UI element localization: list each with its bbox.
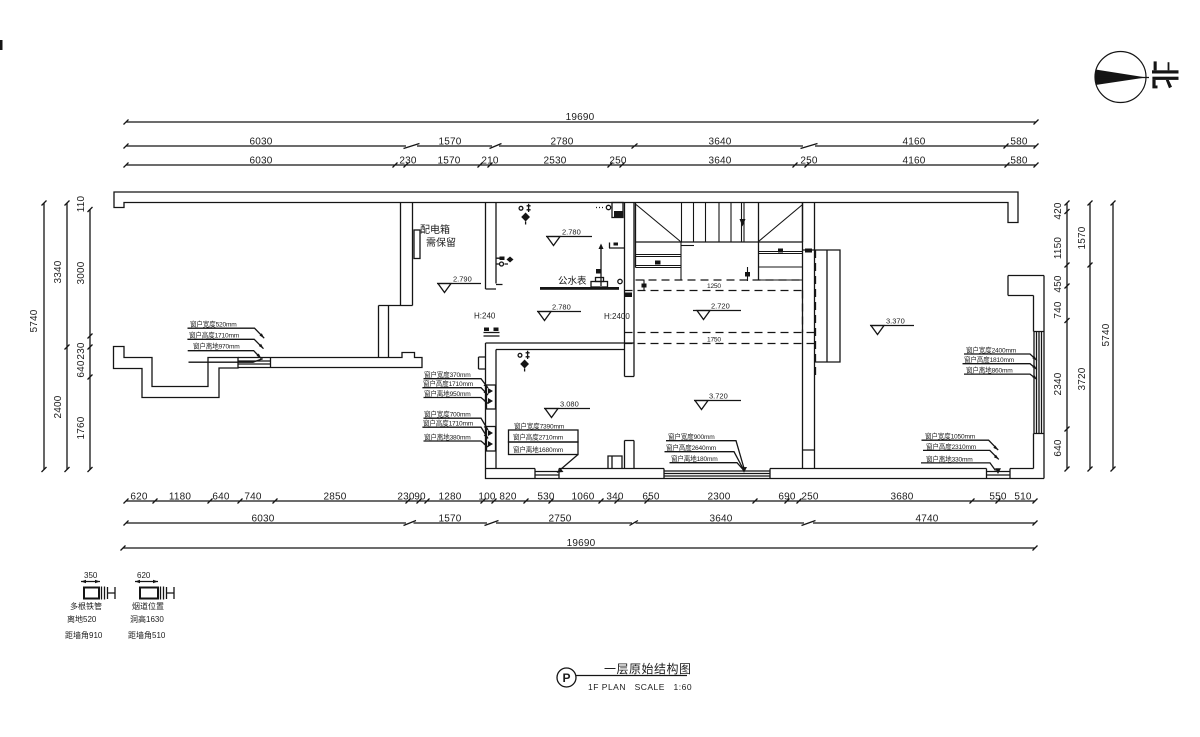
svg-text:1570: 1570 bbox=[1077, 226, 1088, 249]
svg-text:350: 350 bbox=[84, 571, 98, 580]
svg-text:3640: 3640 bbox=[709, 514, 732, 525]
svg-text:2530: 2530 bbox=[543, 156, 566, 167]
svg-text:1060: 1060 bbox=[571, 492, 594, 503]
svg-text:距墙角510: 距墙角510 bbox=[128, 630, 166, 640]
svg-text:窗户宽度7390mm: 窗户宽度7390mm bbox=[514, 421, 565, 430]
svg-text:1750: 1750 bbox=[707, 337, 721, 344]
svg-text:窗户宽度520mm: 窗户宽度520mm bbox=[190, 320, 237, 329]
svg-text:3640: 3640 bbox=[708, 137, 731, 148]
svg-text:窗户宽度1050mm: 窗户宽度1050mm bbox=[925, 432, 976, 441]
svg-text:2.720: 2.720 bbox=[711, 302, 730, 311]
svg-text:640: 640 bbox=[76, 360, 87, 378]
svg-text:窗户高度1710mm: 窗户高度1710mm bbox=[423, 379, 474, 388]
svg-text:19690: 19690 bbox=[566, 112, 595, 123]
svg-text:340: 340 bbox=[606, 492, 624, 503]
svg-text:3.370: 3.370 bbox=[886, 317, 905, 326]
svg-text:窗户宽度900mm: 窗户宽度900mm bbox=[668, 432, 715, 441]
svg-text:6030: 6030 bbox=[251, 514, 274, 525]
svg-text:3640: 3640 bbox=[708, 156, 731, 167]
svg-text:窗户离地180mm: 窗户离地180mm bbox=[671, 454, 718, 463]
svg-text:窗户离地380mm: 窗户离地380mm bbox=[424, 432, 471, 441]
svg-text:烟道位置: 烟道位置 bbox=[132, 601, 164, 611]
svg-text:2300: 2300 bbox=[707, 492, 730, 503]
svg-text:3720: 3720 bbox=[1077, 367, 1088, 390]
svg-text:1570: 1570 bbox=[438, 137, 461, 148]
svg-text:3000: 3000 bbox=[76, 261, 87, 284]
svg-text:250: 250 bbox=[801, 492, 819, 503]
svg-text:洞高1630: 洞高1630 bbox=[130, 614, 164, 624]
svg-text:窗户离地860mm: 窗户离地860mm bbox=[966, 365, 1013, 374]
svg-text:640: 640 bbox=[212, 492, 230, 503]
svg-text:窗户宽度370mm: 窗户宽度370mm bbox=[424, 370, 471, 379]
svg-text:420: 420 bbox=[1053, 202, 1064, 220]
svg-text:4160: 4160 bbox=[902, 156, 925, 167]
svg-text:一层原始结构图: 一层原始结构图 bbox=[604, 661, 692, 676]
svg-text:2850: 2850 bbox=[323, 492, 346, 503]
svg-text:1280: 1280 bbox=[438, 492, 461, 503]
svg-text:740: 740 bbox=[244, 492, 262, 503]
svg-text:1760: 1760 bbox=[76, 416, 87, 439]
svg-text:250: 250 bbox=[609, 156, 627, 167]
svg-text:H:240: H:240 bbox=[474, 312, 496, 321]
svg-text:离地520: 离地520 bbox=[67, 614, 97, 624]
svg-text:640: 640 bbox=[1053, 439, 1064, 457]
svg-text:窗户高度2710mm: 窗户高度2710mm bbox=[513, 432, 564, 441]
svg-text:1250: 1250 bbox=[707, 283, 721, 290]
svg-text:19690: 19690 bbox=[567, 538, 596, 549]
svg-text:250: 250 bbox=[800, 156, 818, 167]
svg-text:740: 740 bbox=[1053, 301, 1064, 319]
svg-text:3340: 3340 bbox=[53, 260, 64, 283]
svg-text:2.780: 2.780 bbox=[562, 228, 581, 237]
svg-text:窗户离地330mm: 窗户离地330mm bbox=[926, 454, 973, 463]
svg-text:窗户离地950mm: 窗户离地950mm bbox=[424, 389, 471, 398]
svg-text:窗户宽度2400mm: 窗户宽度2400mm bbox=[966, 345, 1017, 354]
svg-text:窗户高度1710mm: 窗户高度1710mm bbox=[423, 419, 474, 428]
svg-text:窗户宽度700mm: 窗户宽度700mm bbox=[424, 410, 471, 419]
svg-text:4740: 4740 bbox=[915, 514, 938, 525]
svg-text:配电箱: 配电箱 bbox=[420, 223, 450, 236]
svg-text:6030: 6030 bbox=[249, 156, 272, 167]
svg-text:820: 820 bbox=[499, 492, 517, 503]
svg-text:2340: 2340 bbox=[1053, 372, 1064, 395]
svg-text:2750: 2750 bbox=[548, 514, 571, 525]
svg-text:450: 450 bbox=[1053, 275, 1064, 293]
svg-text:1150: 1150 bbox=[1053, 237, 1064, 260]
svg-text:需保留: 需保留 bbox=[426, 236, 456, 249]
svg-text:4160: 4160 bbox=[902, 137, 925, 148]
svg-text:5740: 5740 bbox=[29, 309, 40, 332]
svg-text:580: 580 bbox=[1010, 137, 1028, 148]
svg-text:510: 510 bbox=[1014, 492, 1032, 503]
svg-text:窗户高度1710mm: 窗户高度1710mm bbox=[189, 331, 240, 340]
svg-text:90: 90 bbox=[414, 492, 426, 503]
svg-text:650: 650 bbox=[642, 492, 660, 503]
svg-text:210: 210 bbox=[481, 156, 499, 167]
svg-text:1F PLAN SCALE 1:60: 1F PLAN SCALE 1:60 bbox=[588, 682, 692, 692]
svg-text:3.080: 3.080 bbox=[560, 400, 579, 409]
svg-text:690: 690 bbox=[778, 492, 796, 503]
svg-text:550: 550 bbox=[989, 492, 1007, 503]
svg-text:530: 530 bbox=[537, 492, 555, 503]
svg-text:2780: 2780 bbox=[550, 137, 573, 148]
svg-text:1180: 1180 bbox=[169, 492, 192, 503]
svg-text:230: 230 bbox=[397, 492, 415, 503]
svg-text:窗户离地1680mm: 窗户离地1680mm bbox=[513, 445, 564, 454]
svg-text:5740: 5740 bbox=[1101, 323, 1112, 346]
svg-text:1570: 1570 bbox=[438, 514, 461, 525]
svg-text:2.790: 2.790 bbox=[453, 275, 472, 284]
svg-text:3680: 3680 bbox=[890, 492, 913, 503]
svg-text:3.720: 3.720 bbox=[709, 392, 728, 401]
svg-text:2.780: 2.780 bbox=[552, 303, 571, 312]
svg-text:窗户高度2310mm: 窗户高度2310mm bbox=[926, 442, 977, 451]
svg-text:窗户高度2640mm: 窗户高度2640mm bbox=[666, 443, 717, 452]
svg-text:100: 100 bbox=[478, 492, 496, 503]
svg-text:距墙角910: 距墙角910 bbox=[65, 630, 103, 640]
svg-text:窗户离地970mm: 窗户离地970mm bbox=[193, 342, 240, 351]
svg-text:580: 580 bbox=[1010, 156, 1028, 167]
svg-text:1570: 1570 bbox=[437, 156, 460, 167]
svg-text:620: 620 bbox=[130, 492, 148, 503]
svg-text:多根铁管: 多根铁管 bbox=[70, 601, 102, 611]
svg-text:230: 230 bbox=[399, 156, 417, 167]
svg-text:H:2400: H:2400 bbox=[604, 312, 630, 321]
svg-text:窗户高度1810mm: 窗户高度1810mm bbox=[964, 355, 1015, 364]
svg-text:6030: 6030 bbox=[249, 137, 272, 148]
svg-text:110: 110 bbox=[76, 195, 87, 212]
svg-text:620: 620 bbox=[137, 571, 151, 580]
svg-text:公水表: 公水表 bbox=[558, 275, 587, 287]
svg-text:230: 230 bbox=[76, 342, 87, 360]
svg-text:P: P bbox=[562, 671, 570, 685]
svg-text:2400: 2400 bbox=[53, 395, 64, 418]
